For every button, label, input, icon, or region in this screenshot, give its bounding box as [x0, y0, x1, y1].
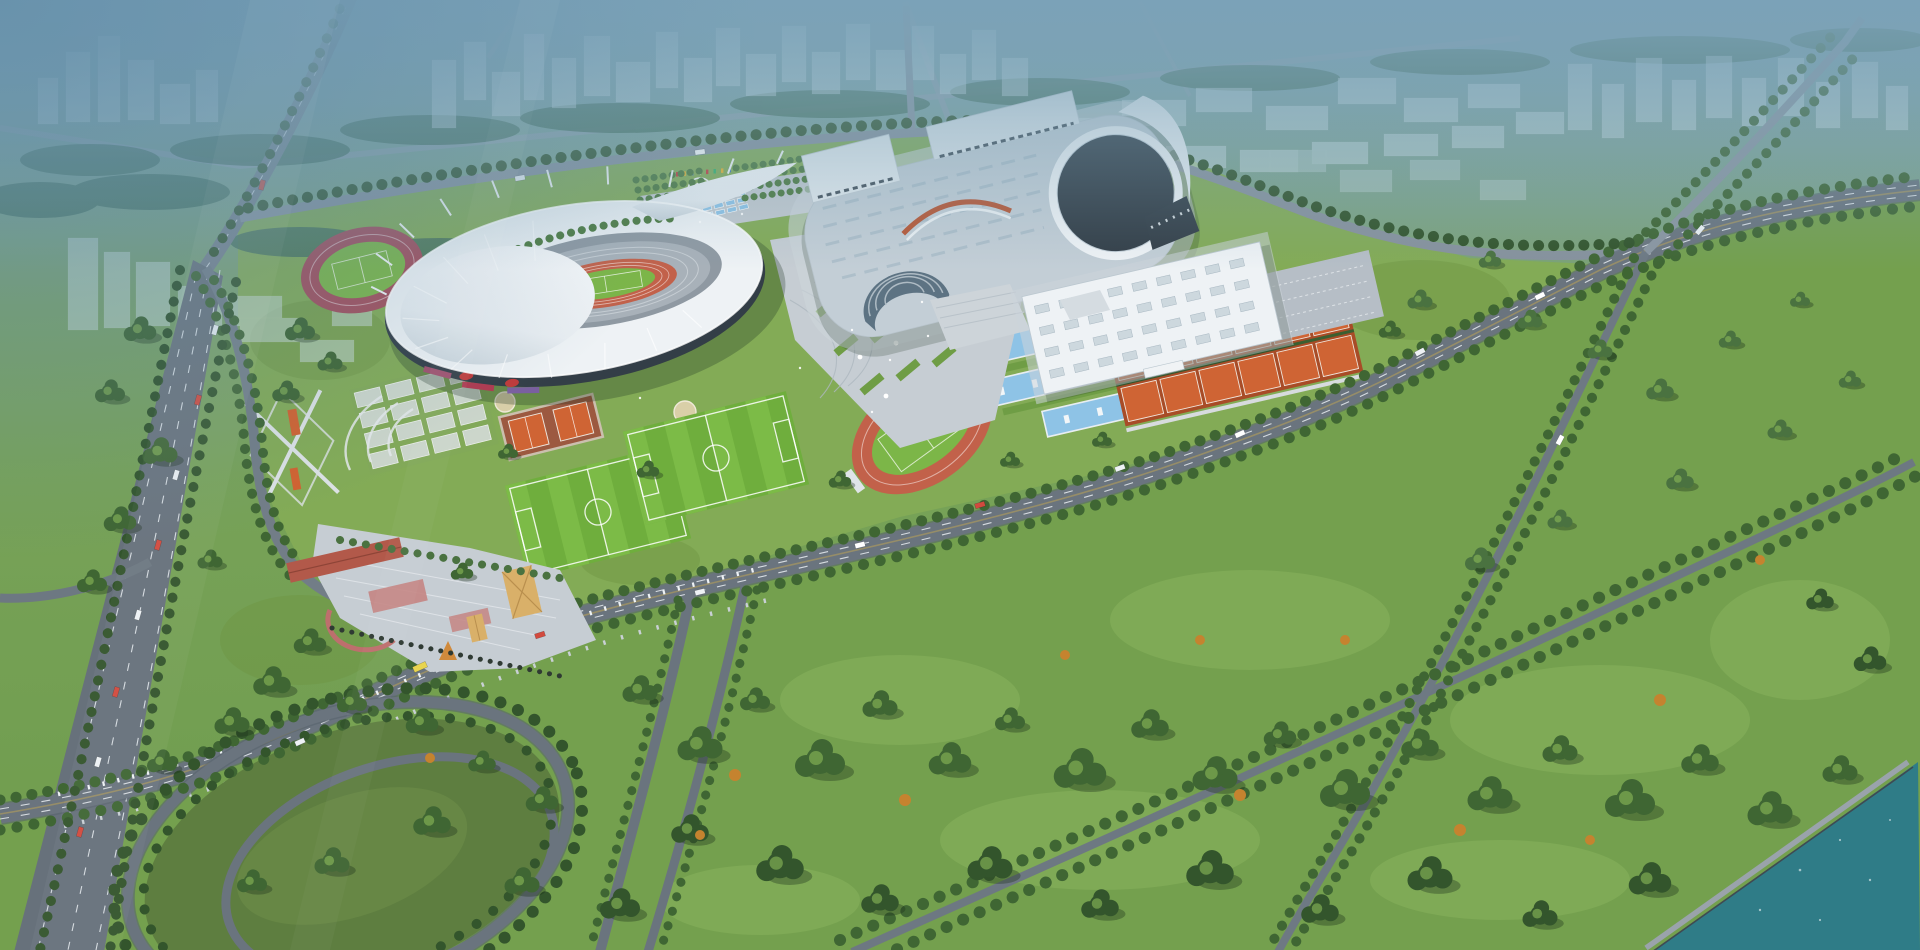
sports-complex-aerial-scene — [0, 0, 1920, 950]
aerial-rendering-canvas — [0, 0, 1920, 950]
corner-haze — [0, 0, 760, 560]
